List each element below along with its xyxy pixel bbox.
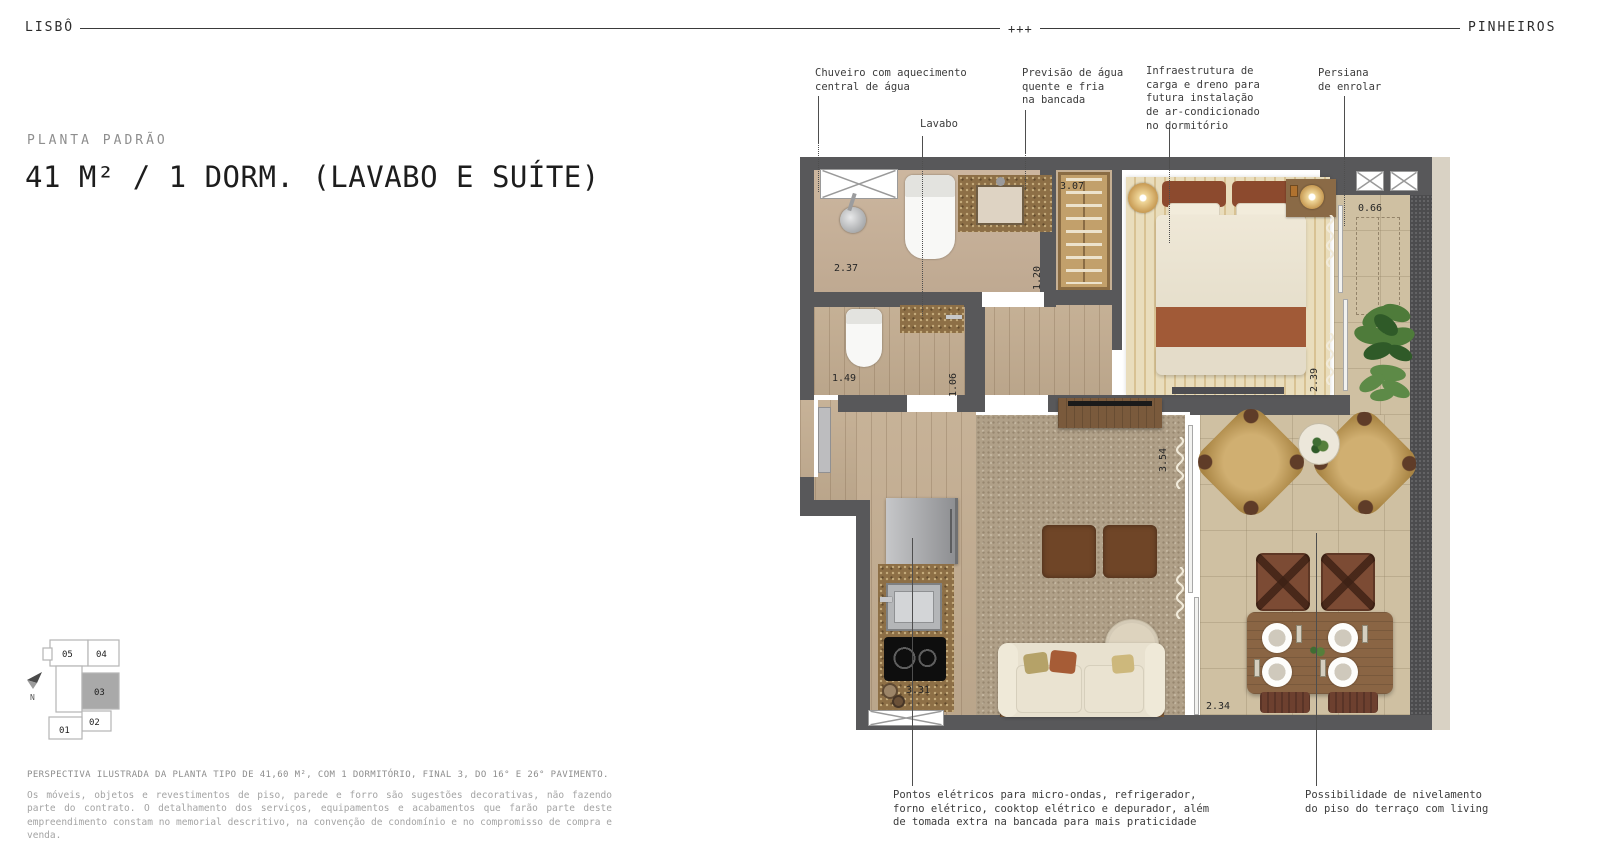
bed-duvet: [1156, 215, 1306, 307]
measure-terrace-width: 2.34: [1206, 701, 1230, 712]
dining-napkin-3: [1254, 659, 1260, 677]
compass-icon: N: [27, 672, 42, 702]
keyplan-label-03: 03: [94, 688, 105, 698]
leader-previsao-dotted: [1025, 152, 1026, 190]
leader-lavabo-dotted: [922, 156, 923, 316]
header-center-mark: +++: [1008, 22, 1033, 36]
curtain-squiggle-bedroom-1: [1324, 215, 1336, 271]
wall-bedroom-south: [1190, 395, 1350, 415]
wall-left: [800, 157, 814, 400]
sofa-arm-right: [1145, 643, 1165, 717]
callout-persiana: Persiana de enrolar: [1318, 67, 1381, 94]
dining-chair-top-left: [1256, 553, 1310, 611]
leader-lavabo: [922, 136, 923, 156]
kitchen-sink-basin: [894, 591, 934, 623]
compass-n-label: N: [30, 693, 35, 702]
suite-toilet: [905, 175, 955, 259]
callout-infraestrutura-ar: Infraestrutura de carga e dreno para fut…: [1146, 65, 1260, 133]
tv: [1068, 401, 1152, 406]
callout-pontos-eletricos: Pontos elétricos para micro-ondas, refri…: [893, 789, 1209, 830]
measure-suite-bath: 2.37: [834, 263, 858, 274]
kitchen-faucet: [880, 597, 892, 602]
measure-bedroom-width: 2.39: [1309, 368, 1320, 392]
shaft-box-kitchen: [868, 710, 944, 726]
callout-chuveiro: Chuveiro com aquecimento central de água: [815, 67, 967, 94]
leader-persiana: [1344, 96, 1345, 158]
lavabo-toilet: [846, 309, 882, 367]
shower-head: [840, 207, 866, 233]
hall-living-threshold: [985, 395, 1048, 412]
living-slider-panel-2: [1194, 597, 1199, 715]
lavabo-counter: [900, 305, 964, 333]
bed-blanket: [1156, 307, 1306, 347]
header-rule-left: [80, 28, 1000, 29]
dining-chair-bottom-left: [1260, 692, 1310, 713]
curtain-squiggle-bedroom-2: [1324, 333, 1336, 389]
cooktop: [884, 637, 946, 681]
suite-door-threshold: [982, 292, 1044, 307]
dining-napkin-1: [1296, 625, 1302, 643]
keyplan-notch: [43, 648, 52, 660]
facade-band: [1432, 157, 1450, 730]
pouf-left: [1042, 525, 1096, 578]
lounge-side-table: [1298, 423, 1340, 465]
refrigerator: [886, 498, 958, 564]
kitchen-pot-2: [892, 695, 905, 708]
nightstand-lamp-right: [1300, 185, 1324, 209]
brochure-page: { "header": { "brand_left": "LISBÔ", "ce…: [0, 0, 1600, 851]
dining-napkin-4: [1320, 659, 1326, 677]
dining-plate-1: [1262, 623, 1292, 653]
floor-plan: 2.37 1.49 1.06 1.20 3.07 2.39 0.66 3.54 …: [800, 157, 1450, 730]
plan-caption: PERSPECTIVA ILUSTRADA DA PLANTA TIPO DE …: [27, 770, 627, 780]
measure-lavabo-depth: 1.06: [948, 373, 959, 397]
measure-terrace-depth: 0.66: [1358, 203, 1382, 214]
wall-closet-south: [1056, 290, 1112, 305]
bed-foot: [1156, 347, 1306, 375]
curtain-squiggle-living-1: [1174, 437, 1186, 493]
curtain-squiggle-living-2: [1174, 567, 1186, 623]
leader-persiana-dotted: [1344, 158, 1345, 226]
leader-nivelamento: [1316, 533, 1317, 786]
nightstand-lamp-left: [1128, 183, 1158, 213]
keyplan-label-01: 01: [59, 726, 70, 736]
entry-door-leaf: [818, 407, 831, 473]
shaft-box-1: [1356, 171, 1384, 191]
callout-lavabo: Lavabo: [920, 118, 958, 132]
sofa-arm-left: [998, 643, 1018, 717]
bedroom-slider-panel-1: [1338, 205, 1343, 293]
measure-kitchen-width: 3.31: [906, 685, 930, 696]
suite-vanity-sink: [976, 185, 1024, 225]
dining-centerpiece-plant: [1306, 643, 1328, 659]
plan-type-eyebrow: PLANTA PADRÃO: [27, 133, 168, 148]
refrigerator-handle: [950, 509, 952, 553]
page-title: 41 M² / 1 DORM. (LAVABO E SUÍTE): [25, 160, 600, 194]
header-rule-right: [1040, 28, 1460, 29]
keyplan-label-05: 05: [62, 650, 73, 660]
measure-lavabo-width: 1.49: [832, 373, 856, 384]
suite-vanity-faucet: [996, 177, 1005, 186]
dining-chair-top-right: [1321, 553, 1375, 611]
brand-left: LISBÔ: [25, 20, 74, 35]
leader-chuveiro: [818, 96, 819, 142]
pouf-right: [1103, 525, 1157, 578]
lavabo-faucet: [946, 315, 962, 319]
terrace-plant: [1348, 295, 1420, 407]
keyplan-label-04: 04: [96, 650, 107, 660]
callout-nivelamento: Possibilidade de nivelamento do piso do …: [1305, 789, 1488, 816]
dining-chair-bottom-right: [1328, 692, 1378, 713]
leader-infraestrutura-dotted: [1169, 167, 1170, 243]
sofa-pillow-tan: [1111, 654, 1134, 674]
shaft-box-2: [1390, 171, 1418, 191]
dining-plate-4: [1328, 657, 1358, 687]
sofa-pillow-olive: [1023, 651, 1050, 674]
lavabo-door-threshold: [907, 395, 957, 412]
wall-bedroom-west: [1112, 170, 1122, 350]
wall-terrace-stub: [1334, 170, 1350, 195]
dining-napkin-2: [1362, 625, 1368, 643]
measure-living-width: 3.54: [1158, 448, 1169, 472]
callout-previsao-agua: Previsão de água quente e fria na bancad…: [1022, 67, 1123, 108]
measure-closet-width: 3.07: [1060, 181, 1084, 192]
keyplan-label-02: 02: [89, 718, 100, 728]
brand-right: PINHEIROS: [1468, 20, 1556, 35]
living-slider-panel-1: [1188, 425, 1193, 593]
leader-pontos-eletricos: [912, 538, 913, 786]
bed-bench: [1172, 387, 1284, 394]
keyplan-core: [56, 666, 82, 712]
legal-disclaimer: Os móveis, objetos e revestimentos de pi…: [27, 789, 612, 842]
bedroom-door-threshold: [1112, 350, 1122, 395]
leader-previsao: [1025, 110, 1026, 152]
sofa-pillow-rust: [1049, 650, 1077, 675]
nightstand-frame: [1290, 185, 1298, 197]
shower-box: [820, 169, 898, 199]
leader-chuveiro-dotted: [818, 142, 819, 192]
wall-kitchen-west: [856, 500, 870, 730]
keyplan: N 05 04 03 02 01: [25, 628, 135, 746]
measure-hall-width: 1.20: [1032, 266, 1043, 290]
dining-plate-3: [1262, 657, 1292, 687]
dining-plate-2: [1328, 623, 1358, 653]
